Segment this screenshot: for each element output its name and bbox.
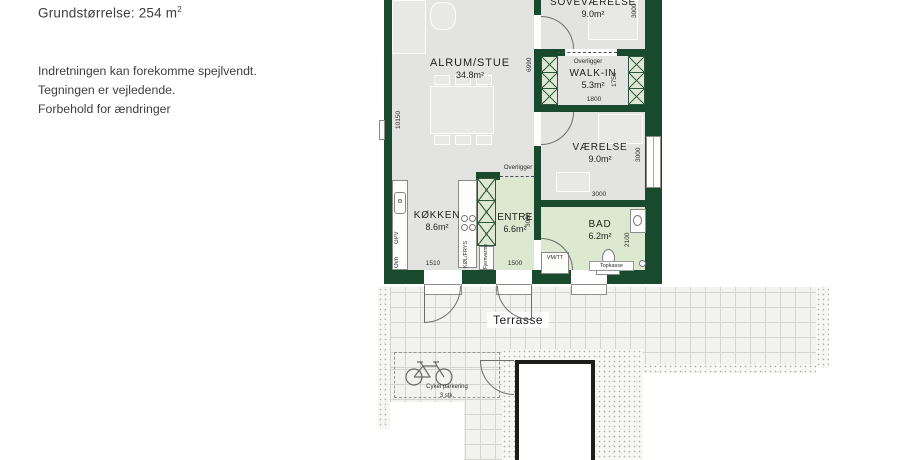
shower-drain	[639, 260, 646, 267]
room-area: 5.3m²	[553, 80, 633, 91]
plot-size-label: Grundstørrelse: 254 m2	[38, 5, 182, 21]
room-label-walkin: WALK-IN 5.3m²	[553, 68, 633, 91]
topkasse-label: Topkasse	[589, 261, 634, 271]
room-label-kokken: KØKKEN 8.6m²	[397, 210, 477, 233]
window-stue-left	[379, 120, 385, 140]
wall-mid-seg1	[534, 0, 541, 15]
wall-sov-walkin-stub-right	[617, 49, 645, 56]
kol-frys-label: KØL/FRYS	[463, 238, 469, 268]
lounge-chair-outline	[430, 2, 456, 30]
window-vaerelse-sash	[653, 137, 654, 187]
wall-bottom-seg1	[384, 270, 424, 284]
plot-size-text: Grundstørrelse: 254 m	[38, 6, 177, 21]
bike-parking-label: Cykel parkering	[394, 384, 500, 390]
chair	[476, 135, 492, 145]
disclaimer-block: Indretningen kan forekomme spejlvendt. T…	[38, 62, 257, 119]
fjernvarme-label: Fjernvarme	[483, 247, 489, 269]
floorplan-page: Grundstørrelse: 254 m2 Indretningen kan …	[0, 0, 905, 460]
bare-ground-patch	[390, 402, 464, 460]
disclaimer-line-2: Tegningen er vejledende.	[38, 81, 257, 100]
sofa-outline	[392, 0, 426, 54]
room-area: 34.8m²	[420, 70, 520, 81]
plot-size-superscript: 2	[177, 5, 182, 14]
wall-mid-seg2	[534, 49, 541, 112]
desk-vaerelse	[556, 172, 590, 192]
chair	[434, 135, 450, 145]
dim-bad-height: 2100	[624, 226, 631, 254]
room-name: WALK-IN	[553, 68, 633, 80]
room-label-sovevaerelse: SOVEVÆRELSE 9.0m²	[543, 0, 643, 20]
gravel-strip-left	[378, 287, 390, 429]
dim-sovevaerelse-width: 3000	[631, 0, 638, 22]
step-bad-door	[571, 284, 607, 295]
door-leaf-stue-terrace	[424, 286, 425, 323]
ovn-label: Ovn	[394, 246, 400, 268]
dim-kokken-width: 1510	[416, 260, 450, 267]
bed-vaerelse	[598, 114, 643, 144]
dim-stue-height: 6990	[526, 50, 533, 80]
dim-walkin-height: 1750	[611, 66, 618, 94]
wall-left	[384, 0, 392, 284]
gravel-fringe-bottom	[643, 364, 816, 373]
wall-walkin-vaerelse	[541, 105, 645, 112]
vanity-basin	[633, 215, 642, 226]
door-leaf-entre-terrace	[531, 286, 532, 320]
dim-entre-width: 1500	[498, 260, 532, 267]
room-name: SOVEVÆRELSE	[543, 0, 643, 9]
room-name: KØKKEN	[397, 210, 477, 222]
room-name: BAD	[570, 219, 630, 231]
room-name: ALRUM/STUE	[420, 57, 520, 70]
room-area: 8.6m²	[397, 222, 477, 233]
disclaimer-line-3: Forbehold for ændringer	[38, 100, 257, 119]
sink-drain	[398, 199, 402, 203]
overligger-opening-walkin	[557, 52, 617, 53]
bike-parking-count: 3 stk.	[394, 393, 500, 399]
room-area: 6.2m²	[570, 231, 630, 242]
wall-vaerelse-bad	[541, 200, 645, 207]
dim-vaerelse-height: 3000	[635, 142, 642, 168]
dim-walkin-width: 1800	[578, 96, 610, 103]
room-label-stue: ALRUM/STUE 34.8m²	[420, 57, 520, 81]
room-label-bad: BAD 6.2m²	[570, 219, 630, 242]
dim-entre-height: 3080	[525, 206, 532, 234]
disclaimer-line-1: Indretningen kan forekomme spejlvendt.	[38, 62, 257, 81]
dim-vaerelse-width: 3000	[582, 191, 616, 198]
door-leaf-shed	[480, 360, 514, 361]
chair	[455, 135, 471, 145]
dining-table	[430, 86, 494, 134]
wardrobe-box	[477, 178, 496, 202]
shed	[515, 360, 595, 460]
overligger-opening-entre	[500, 176, 534, 177]
room-area: 9.0m²	[543, 9, 643, 20]
overligger-label-entre: Overligger	[498, 164, 538, 171]
overligger-label-walkin: Overligger	[568, 58, 608, 65]
gravel-strip-right	[816, 287, 829, 368]
dim-left-height: 10150	[395, 100, 402, 140]
wall-bottom-seg2	[462, 270, 496, 284]
bicycle-icon	[404, 358, 454, 386]
